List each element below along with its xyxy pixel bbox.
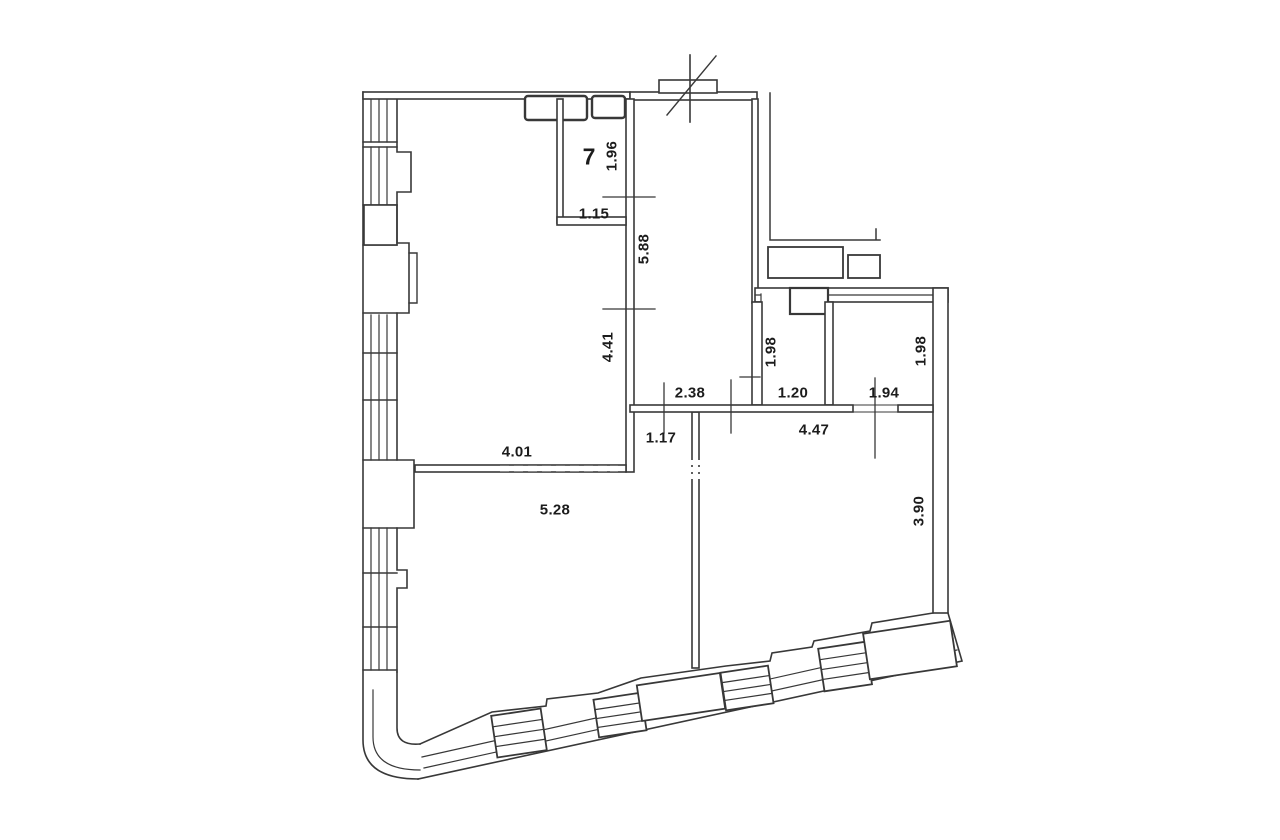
bathroom-block: [630, 288, 948, 613]
interior-walls: [415, 99, 758, 668]
left-window-wall: [363, 92, 420, 779]
kitchen-right-wall: [752, 99, 758, 303]
counter-unit: [848, 255, 880, 278]
right-wall: [933, 288, 948, 613]
room-number: 7: [583, 144, 596, 171]
dim-alcove-height: 1.96: [604, 141, 621, 171]
dim-hall-width: 2.38: [675, 385, 705, 402]
dim-living-width: 5.28: [540, 502, 570, 519]
bedroom-divider-wall: [692, 412, 699, 668]
vent-shaft: [592, 96, 625, 118]
bath-left-wall: [752, 302, 762, 405]
hall-wall-end: [898, 405, 933, 412]
floor-plan: 7 1.96 1.15 5.88 4.41 2.38 1.17 4.01 5.2…: [0, 0, 1280, 840]
dim-alcove-width: 1.15: [579, 206, 609, 223]
wall-break-marks: [690, 460, 701, 479]
window: [491, 709, 547, 758]
bottom-window-wall: [418, 613, 962, 779]
balcony-door: [637, 673, 725, 721]
dim-corridor-width: 4.47: [799, 422, 829, 439]
bath-door-opening: [761, 294, 791, 303]
dim-left-room-height: 4.41: [600, 332, 617, 362]
watermark-trace: [500, 466, 618, 472]
dim-left-room-width: 4.01: [502, 444, 532, 461]
window: [720, 666, 773, 711]
counter-unit: [768, 247, 843, 278]
dim-bedroom-height: 3.90: [911, 496, 928, 526]
kitchen-fixtures: [768, 93, 880, 278]
dim-hall-inner-width: 1.17: [646, 430, 676, 447]
floor-plan-drawing: [0, 0, 1280, 840]
dim-bath-right-height: 1.98: [913, 336, 930, 366]
vent-shaft: [790, 288, 828, 314]
bath-middle-wall: [825, 302, 833, 405]
dim-bath-left-height: 1.98: [763, 337, 780, 367]
main-vertical-wall: [626, 99, 634, 472]
dim-kitchen-depth: 5.88: [636, 234, 653, 264]
balcony-door: [863, 621, 957, 680]
window: [818, 642, 872, 692]
alcove-left-wall: [557, 99, 563, 223]
vent-shaft: [525, 96, 587, 120]
dim-bath-right-width: 1.94: [869, 385, 899, 402]
riser-symbol: [659, 55, 717, 122]
dim-bath-left-width: 1.20: [778, 385, 808, 402]
